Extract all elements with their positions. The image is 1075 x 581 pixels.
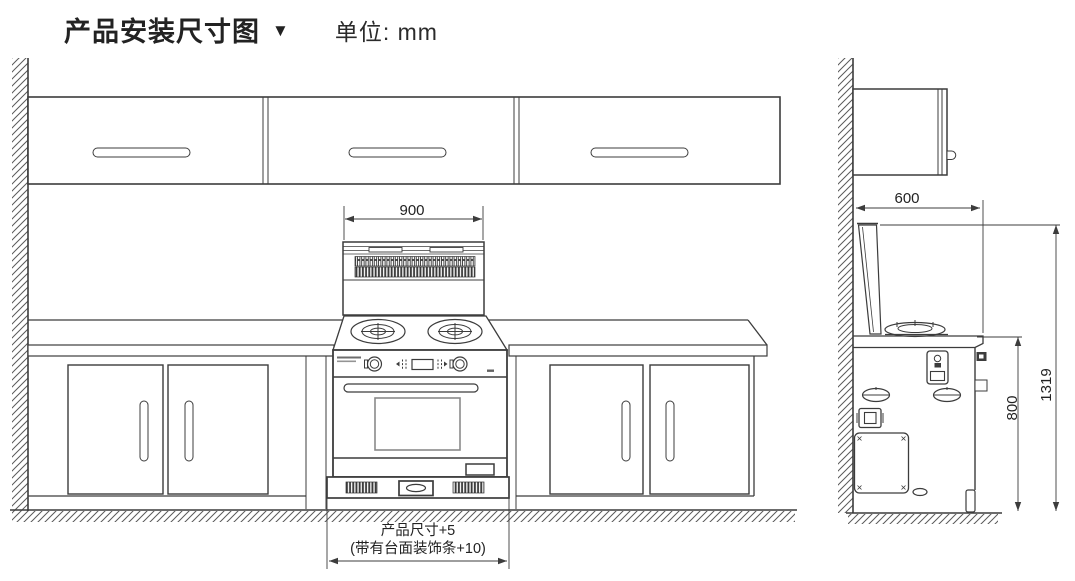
door-handle	[666, 401, 674, 461]
note-line2: (带有台面装饰条+10)	[350, 540, 486, 557]
cabinet-door	[168, 365, 268, 494]
dim-hood-width: 900	[344, 202, 483, 240]
wall-left	[12, 58, 28, 511]
gas-valve	[927, 351, 948, 384]
stove-body-side	[855, 348, 988, 513]
cabinet-handle	[93, 148, 190, 157]
hood-grille-bottom	[355, 267, 475, 277]
cabinet-door	[650, 365, 749, 494]
lower-cabinet-left	[28, 356, 326, 509]
door-handle	[140, 401, 148, 461]
stove-base	[327, 477, 509, 498]
base-vent	[453, 482, 484, 493]
upper-cabinet-side	[853, 89, 956, 175]
installation-diagram: 900	[0, 0, 1075, 581]
cabinet-handle-side	[947, 151, 956, 160]
stove-side	[853, 224, 987, 513]
hood-grille-top	[355, 257, 475, 267]
power-socket	[857, 409, 883, 428]
countertop-right	[487, 320, 767, 356]
cabinet-door	[68, 365, 163, 494]
rear-fitting	[975, 380, 987, 391]
dim-counter-height: 800	[977, 337, 1022, 511]
burner-side	[885, 320, 948, 337]
stove-hood	[343, 242, 484, 315]
wall-right	[838, 58, 853, 513]
door-handle	[185, 401, 193, 461]
diagram-canvas: 900	[0, 0, 1075, 581]
dim-depth-value: 600	[894, 190, 919, 207]
hood-slot	[430, 248, 463, 253]
cabinet-handle	[591, 148, 688, 157]
access-panel	[855, 433, 909, 493]
countertop-left	[28, 320, 344, 356]
pipe-cap-right	[934, 387, 961, 402]
stove-cooktop	[333, 316, 507, 350]
unit-label: 单位: mm	[335, 13, 438, 47]
oven-badge	[466, 464, 494, 475]
page-title: 产品安装尺寸图	[64, 10, 260, 49]
stove-body	[333, 350, 507, 477]
title-bar: 产品安装尺寸图 ▼ 单位: mm	[64, 10, 438, 49]
dim-total-height-value: 1319	[1038, 368, 1055, 401]
countertop-side	[853, 336, 983, 348]
note-line1: 产品尺寸+5	[381, 522, 456, 539]
dim-counter-height-value: 800	[1004, 395, 1021, 420]
oven-handle	[344, 384, 478, 392]
brand-logo	[337, 357, 361, 359]
upper-cabinets	[28, 97, 780, 184]
hood-slot	[369, 248, 402, 253]
side-view: 600	[838, 58, 1060, 524]
dim-hood-width-value: 900	[399, 202, 424, 219]
oven-window	[375, 398, 460, 450]
title-marker-icon: ▼	[272, 21, 289, 41]
floor-front	[10, 510, 797, 522]
floor-side	[846, 513, 1002, 524]
lower-cabinet-right	[516, 356, 754, 509]
base-latch	[399, 481, 433, 496]
cabinet-handle	[349, 148, 446, 157]
drain-cap	[913, 489, 927, 496]
stove-foot	[966, 490, 975, 512]
pipe-cap-left	[863, 387, 890, 402]
dim-product-note: 产品尺寸+5 (带有台面装饰条+10)	[327, 498, 509, 569]
base-vent	[346, 482, 377, 493]
front-view: 900	[10, 58, 797, 569]
hood-screen-side	[859, 225, 882, 334]
door-handle	[622, 401, 630, 461]
